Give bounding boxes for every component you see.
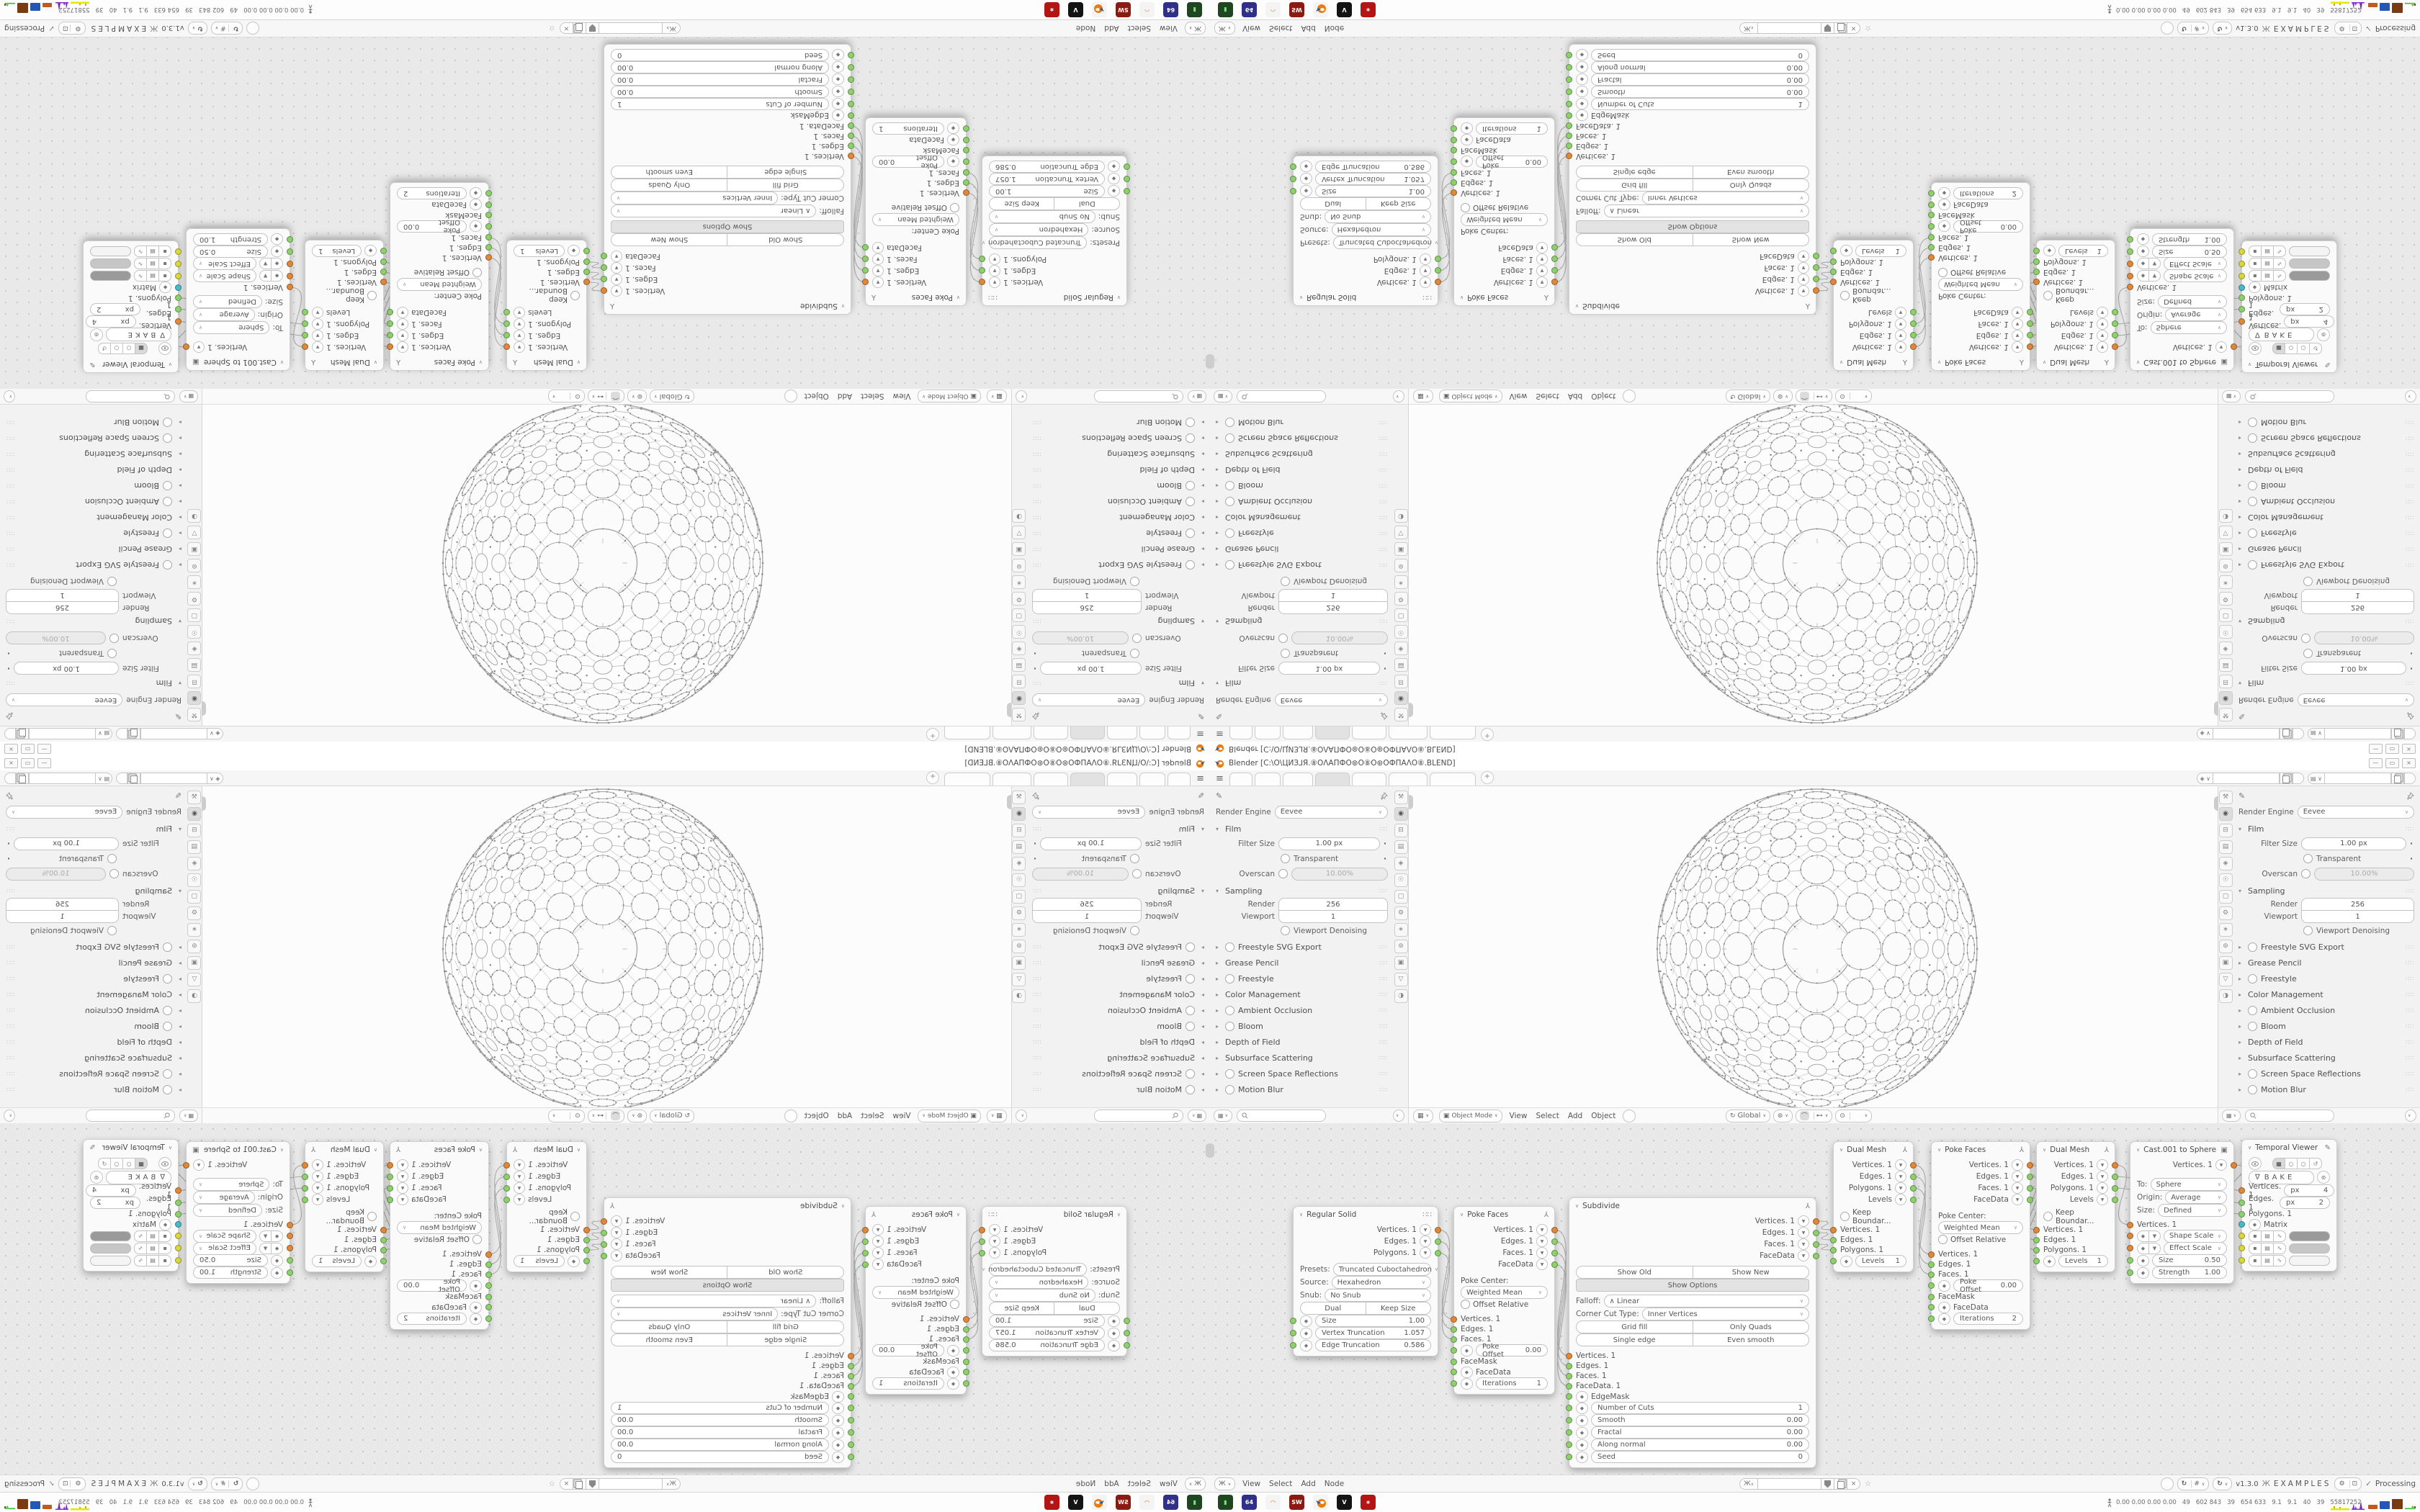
collapse-node-icon[interactable]: ∨ — [2136, 359, 2140, 365]
transparent-checkbox[interactable] — [1130, 854, 1139, 863]
socket[interactable] — [1566, 153, 1572, 160]
scene-selector-name-field[interactable] — [140, 773, 207, 784]
socket-menu-button[interactable]: ▼ — [514, 330, 525, 341]
scene-tab-icon[interactable]: ◈ — [1394, 857, 1408, 870]
transparent-checkbox[interactable] — [107, 854, 117, 863]
param-select[interactable]: Hexahedron∨ — [989, 223, 1088, 236]
socket[interactable] — [963, 1359, 969, 1365]
node-regular-solid[interactable]: ∨Regular Solid∷∷Vertices. 1▼Edges. 1▼Pol… — [1293, 1206, 1438, 1356]
collapsed-section[interactable]: ▸Grease Pencil∷∷ — [0, 956, 187, 969]
socket-menu-button[interactable]: ▼ — [2012, 318, 2023, 330]
socket[interactable] — [183, 344, 189, 351]
collapsed-section[interactable]: ▸Grease Pencil∷∷ — [1026, 543, 1210, 556]
node-editor-type-button[interactable]: Ж∨ — [1214, 22, 1235, 35]
section-toggle[interactable] — [163, 482, 172, 491]
node-poke-faces[interactable]: ∨Poke Faces⅄Vertices. 1▼Edges. 1▼Faces. … — [865, 1206, 967, 1395]
render-engine-select[interactable]: Eevee∨ — [2298, 806, 2414, 819]
search-input[interactable] — [1237, 390, 1326, 402]
collapse-menu-button[interactable]: ∨ — [1016, 390, 1027, 402]
section-toggle[interactable] — [1225, 1022, 1234, 1031]
option-button[interactable]: Keep Size — [989, 1302, 1055, 1315]
section-toggle[interactable] — [1186, 1022, 1195, 1031]
socket[interactable] — [1566, 1454, 1572, 1460]
socket-options-button[interactable]: ◆ — [364, 1256, 377, 1267]
output-tab-icon[interactable]: ⊟ — [2219, 824, 2233, 837]
socket-options-button[interactable]: ◆ — [1108, 1315, 1120, 1327]
value-field[interactable]: Poke Offset0.00 — [1953, 1279, 2023, 1292]
socket[interactable] — [2112, 1162, 2118, 1169]
socket[interactable] — [1451, 1369, 1457, 1375]
value-field[interactable]: Levels1 — [2058, 245, 2108, 257]
socket-menu-button[interactable]: ▼ — [1536, 242, 1548, 253]
value-field[interactable]: Strength1.00 — [2152, 233, 2227, 246]
display-mode-button[interactable]: ○ — [122, 1158, 135, 1169]
node-menu-node[interactable]: Node — [1323, 1480, 1345, 1488]
socket-menu-button[interactable]: ▼ — [1536, 276, 1548, 288]
value-field[interactable]: Iterations1 — [1476, 122, 1548, 135]
socket[interactable] — [2238, 1245, 2245, 1251]
node-menu-node[interactable]: Node — [1075, 24, 1097, 32]
node-poke-faces[interactable]: ∨Poke Faces⅄Vertices. 1▼Edges. 1▼Faces. … — [1453, 1206, 1555, 1395]
value-field[interactable]: Edge Truncation0.586 — [1315, 161, 1431, 173]
overscan-field[interactable]: 10.00% — [1291, 632, 1388, 645]
socket-options-button[interactable]: ◆ — [271, 246, 283, 258]
socket[interactable] — [2238, 318, 2245, 325]
socket[interactable] — [601, 265, 607, 271]
tree-name-field[interactable] — [1758, 22, 1821, 34]
socket[interactable] — [2238, 1221, 2245, 1228]
viewport-denoising-checkbox[interactable] — [1130, 577, 1139, 586]
viewport-menu-view[interactable]: View — [1508, 392, 1529, 401]
socket-menu-button[interactable]: ▼ — [397, 1159, 408, 1171]
output-tab-icon[interactable]: ⊟ — [1394, 675, 1408, 688]
socket[interactable] — [503, 344, 510, 351]
object-tab-icon[interactable]: ▢ — [1013, 890, 1026, 904]
object-tab-icon[interactable]: ▢ — [1394, 608, 1408, 622]
collapsed-section[interactable]: ▸Screen Space Reflections∷∷ — [1210, 1067, 1394, 1080]
editor-type-button[interactable]: ▦∨ — [2222, 390, 2241, 402]
socket[interactable] — [1830, 269, 1837, 276]
socket[interactable] — [287, 1245, 293, 1251]
collapsed-section[interactable]: ▸Motion Blur∷∷ — [1026, 1083, 1210, 1096]
collapsed-section[interactable]: ▸Motion Blur∷∷ — [2233, 416, 2420, 429]
socket[interactable] — [485, 190, 492, 197]
socket[interactable] — [963, 125, 969, 132]
close-button[interactable]: × — [4, 744, 18, 754]
node-dual-mesh[interactable]: ∨Dual Mesh⅄Vertices. 1▼Edges. 1▼Polygons… — [506, 240, 587, 371]
tool-tab-icon[interactable]: ⚒ — [2219, 791, 2233, 804]
unlink-button[interactable] — [4, 728, 16, 739]
swatch-option-button[interactable]: ▤ — [146, 1230, 159, 1242]
socket[interactable] — [387, 1197, 393, 1203]
socket-menu-button[interactable]: ▼ — [259, 258, 272, 270]
unlink-tree-button[interactable]: × — [1847, 1478, 1860, 1490]
render-engine-select[interactable]: Eevee∨ — [1275, 694, 1388, 707]
collapsed-section[interactable]: ▸Ambient Occlusion∷∷ — [0, 495, 187, 508]
section-toggle[interactable] — [163, 1069, 172, 1079]
physics-tab-icon[interactable]: ⊚ — [188, 940, 202, 953]
socket-menu-button[interactable]: ▼ — [1798, 1227, 1809, 1238]
toolbar-handle[interactable] — [1409, 703, 1413, 717]
collapsed-section[interactable]: ▸Bloom∷∷ — [1026, 480, 1210, 492]
value-field[interactable]: Strength1.00 — [2152, 1266, 2227, 1279]
section-toggle[interactable] — [1225, 1006, 1234, 1015]
particles-tab-icon[interactable]: ∗ — [188, 923, 202, 937]
socket[interactable] — [848, 112, 854, 119]
socket-menu-button[interactable]: ▼ — [872, 1236, 884, 1247]
socket[interactable] — [387, 1185, 393, 1192]
display-mode-button[interactable]: ▦ — [2272, 343, 2285, 354]
socket[interactable] — [175, 284, 181, 291]
proportional-edit-widget[interactable]: ⊙ ∨ — [548, 1110, 585, 1122]
option-button[interactable]: Show Options — [611, 220, 844, 233]
socket-menu-button[interactable]: ▼ — [397, 1171, 408, 1182]
socket[interactable] — [2027, 344, 2033, 351]
section-toggle[interactable] — [1186, 1006, 1195, 1015]
swatch-option-button[interactable]: ▪ — [2249, 271, 2262, 282]
collapsed-section[interactable]: ▸Motion Blur∷∷ — [1210, 1083, 1394, 1096]
option-button[interactable]: Show New — [1693, 233, 1810, 246]
socket[interactable] — [380, 1237, 387, 1243]
collapse-node-icon[interactable]: ∨ — [1937, 1147, 1941, 1153]
socket[interactable] — [963, 1369, 969, 1375]
update-all-widget[interactable]: ↻#∨ — [211, 1477, 243, 1490]
viewlayer-selector-name-field[interactable] — [2325, 773, 2391, 784]
option-button[interactable]: Even smooth — [611, 166, 728, 179]
socket-options-button[interactable]: ◆ — [1938, 1313, 1950, 1325]
socket-options-button[interactable]: ◆ — [1300, 174, 1312, 185]
value-field[interactable]: Levels1 — [514, 245, 565, 257]
tree-browse-button[interactable]: Ж∨ — [1739, 1478, 1758, 1490]
unlink-button[interactable] — [2404, 728, 2416, 739]
toggle-checkbox[interactable] — [472, 268, 482, 277]
socket[interactable] — [302, 1162, 308, 1169]
socket-options-button[interactable]: ◆ — [832, 86, 844, 98]
collapse-node-icon[interactable]: ∨ — [1460, 1212, 1464, 1218]
socket[interactable] — [485, 1294, 492, 1300]
socket[interactable] — [1435, 1227, 1441, 1233]
value-field[interactable]: Seed0 — [611, 1451, 829, 1463]
workspace-tab[interactable] — [1283, 726, 1313, 739]
socket-menu-button[interactable]: ▼ — [872, 1259, 884, 1270]
workspace-tab[interactable] — [1107, 726, 1137, 739]
console-app-icon[interactable]: ▮ — [1187, 2, 1202, 17]
socket[interactable] — [1551, 1227, 1558, 1233]
update-current-widget[interactable]: ↻∨ — [2213, 1477, 2232, 1490]
world-tab-icon[interactable]: ☉ — [1394, 625, 1408, 639]
socket-options-button[interactable]: ◆ — [832, 50, 844, 61]
console-app-icon[interactable]: ▮ — [1187, 1495, 1202, 1510]
material-tab-icon[interactable]: ◑ — [1394, 989, 1408, 1003]
overscan-field[interactable]: 10.00% — [6, 868, 106, 881]
collapsed-section[interactable]: ▸Grease Pencil∷∷ — [0, 543, 187, 556]
socket[interactable] — [1928, 212, 1935, 219]
modifiers-tab-icon[interactable]: ⚙ — [188, 906, 202, 920]
node-toolbar-handle[interactable] — [1210, 354, 1214, 369]
socket-menu-button[interactable]: ▼ — [2097, 341, 2108, 353]
value-field[interactable]: Levels1 — [312, 245, 362, 257]
value-field[interactable]: Strength1.00 — [193, 233, 268, 246]
node-subdivide[interactable]: ∨Subdivide⅄Vertices. 1▼Edges. 1▼Faces. 1… — [1569, 44, 1816, 315]
firefox-app-icon[interactable]: ◠ — [1139, 2, 1155, 17]
workspace-tab[interactable] — [1034, 773, 1068, 786]
socket[interactable] — [503, 333, 510, 339]
constraints-tab-icon[interactable]: ▣ — [1013, 542, 1026, 556]
collapsed-section[interactable]: ▸Freestyle SVG Export∷∷ — [2233, 940, 2420, 953]
collapse-node-icon[interactable]: ∨ — [577, 359, 581, 365]
node-editor-type-button[interactable]: Ж∨ — [1214, 1477, 1235, 1490]
socket-options-button[interactable]: ◆ — [1108, 1340, 1120, 1351]
render-tab-icon[interactable]: ◉ — [1394, 807, 1408, 821]
close-button[interactable]: × — [2402, 758, 2416, 768]
output-tab-icon[interactable]: ⊟ — [1013, 675, 1026, 688]
socket[interactable] — [1830, 1237, 1837, 1243]
sidebar-handle[interactable] — [202, 701, 206, 716]
socket[interactable] — [1451, 1359, 1457, 1365]
socket[interactable] — [2238, 284, 2245, 291]
collapse-node-icon[interactable]: ∨ — [1117, 294, 1121, 300]
transparent-checkbox[interactable] — [1281, 649, 1290, 658]
copy-button[interactable] — [2391, 773, 2404, 784]
collapse-menu-button[interactable]: ∨ — [1393, 1110, 1404, 1122]
socket[interactable] — [1566, 1393, 1572, 1400]
tree-settings-widget[interactable]: ⚙⊡ — [2334, 22, 2362, 35]
modifiers-tab-icon[interactable]: ⚙ — [188, 592, 202, 606]
socket-menu-button[interactable]: ▼ — [514, 1171, 525, 1182]
viewport-denoising-checkbox[interactable] — [2303, 577, 2313, 586]
socket[interactable] — [175, 1257, 181, 1264]
display-mode-button[interactable]: ○ — [110, 1158, 123, 1169]
socket[interactable] — [1813, 253, 1819, 260]
workspace-tab[interactable] — [1389, 773, 1428, 786]
socket[interactable] — [2238, 295, 2245, 302]
collapse-node-icon[interactable]: ∨ — [169, 361, 172, 367]
viewport-3d[interactable]: ▦∨ ▣ Object Mode∨ View Select Add Object… — [1408, 389, 2218, 726]
socket[interactable] — [583, 1237, 590, 1243]
socket[interactable] — [963, 1336, 969, 1343]
workspace-tab[interactable] — [1255, 726, 1281, 739]
socket[interactable] — [2127, 1245, 2133, 1251]
socket-menu-button[interactable]: ▼ — [2097, 330, 2108, 341]
toggle-checkbox[interactable] — [472, 1235, 482, 1244]
socket-menu-button[interactable]: ▼ — [312, 307, 323, 318]
render-engine-select[interactable]: Eevee∨ — [1275, 806, 1388, 819]
display-mode-button[interactable]: ○ — [2297, 343, 2310, 354]
param-select[interactable]: Inner Vertices∨ — [1642, 192, 1809, 204]
socket-options-button[interactable]: ◆ — [1300, 186, 1312, 197]
view-layer-tab-icon[interactable]: ▤ — [1394, 840, 1408, 854]
socket-menu-button[interactable]: ▼ — [1420, 253, 1431, 265]
render-tab-icon[interactable]: ◉ — [1013, 691, 1026, 705]
socket[interactable] — [1910, 344, 1917, 351]
collapsed-section[interactable]: ▸Bloom∷∷ — [1210, 1020, 1394, 1032]
eye-icon[interactable] — [2249, 342, 2262, 355]
copy-tree-button[interactable] — [1834, 1478, 1847, 1490]
output-tab-icon[interactable]: ⊟ — [2219, 675, 2233, 688]
socket[interactable] — [979, 1238, 985, 1245]
mode-select[interactable]: Effect Scale∨ — [193, 258, 256, 271]
socket-menu-button[interactable]: ▼ — [193, 341, 205, 353]
overscan-field[interactable]: 10.00% — [1032, 868, 1129, 881]
data-tab-icon[interactable]: ▽ — [2219, 526, 2233, 539]
overscan-checkbox[interactable] — [2301, 634, 2311, 643]
socket[interactable] — [175, 273, 181, 279]
overscan-field[interactable]: 10.00% — [1291, 868, 1388, 881]
blender-app-icon[interactable] — [1313, 1495, 1328, 1510]
collapsed-section[interactable]: ▸Motion Blur∷∷ — [1026, 416, 1210, 429]
socket[interactable] — [1910, 1197, 1917, 1203]
workspace-tab[interactable] — [1352, 773, 1386, 786]
collapsed-section[interactable]: ▸Screen Space Reflections∷∷ — [1026, 432, 1210, 445]
viewport-menu-object[interactable]: Object — [1590, 392, 1617, 401]
section-toggle[interactable] — [1186, 974, 1195, 984]
socket[interactable] — [979, 268, 985, 274]
socket[interactable] — [387, 321, 393, 328]
socket-menu-button[interactable]: ▼ — [397, 1182, 408, 1194]
socket[interactable] — [848, 1353, 854, 1359]
collapsed-section[interactable]: ▸Grease Pencil∷∷ — [2233, 956, 2420, 969]
viewport-menu-select[interactable]: Select — [859, 1112, 885, 1120]
copy-button[interactable] — [127, 728, 140, 739]
socket-options-button[interactable]: ◆ — [2043, 1256, 2056, 1267]
socket[interactable] — [963, 1347, 969, 1354]
workspace-tab[interactable] — [1255, 773, 1281, 786]
socket-menu-button[interactable]: ▼ — [989, 1224, 1000, 1236]
param-select[interactable]: Sphere∨ — [2151, 321, 2227, 334]
search-input[interactable] — [2245, 390, 2334, 402]
material-tab-icon[interactable]: ◑ — [1013, 509, 1026, 523]
section-toggle[interactable] — [1186, 434, 1195, 444]
socket[interactable] — [503, 1185, 510, 1192]
socket-menu-button[interactable]: ▼ — [514, 341, 525, 353]
socket[interactable] — [1928, 1261, 1935, 1268]
collapsed-section[interactable]: ▸Screen Space Reflections∷∷ — [1026, 1067, 1210, 1080]
socket-menu-button[interactable]: ▼ — [312, 1159, 323, 1171]
socket[interactable] — [485, 202, 492, 208]
socket[interactable] — [1830, 279, 1837, 286]
socket[interactable] — [1451, 1347, 1457, 1354]
collapsed-section[interactable]: ▸Freestyle SVG Export∷∷ — [2233, 559, 2420, 572]
collapsed-section[interactable]: ▸Screen Space Reflections∷∷ — [2233, 432, 2420, 445]
socket[interactable] — [862, 245, 869, 251]
socket-options-button[interactable]: ◆ — [832, 74, 844, 86]
socket-options-button[interactable]: ◆ — [947, 123, 959, 135]
close-button[interactable]: × — [2402, 744, 2416, 754]
swatch-option-button[interactable]: ▤ — [146, 271, 159, 282]
value-field[interactable]: Along normal0.00 — [611, 61, 829, 73]
socket[interactable] — [2033, 269, 2040, 276]
physics-tab-icon[interactable]: ⊚ — [2219, 559, 2233, 572]
option-button[interactable]: Grid fill — [1576, 1320, 1693, 1333]
socket-menu-button[interactable]: ▼ — [611, 1227, 622, 1238]
socket-menu-button[interactable]: ▼ — [1420, 1224, 1431, 1236]
socket-options-button[interactable]: ◆ — [2249, 1219, 2261, 1230]
scene-selector-browse-button[interactable]: ◈ ∨ — [2197, 773, 2213, 784]
viewport-menu-view[interactable]: View — [1508, 1112, 1529, 1120]
socket-menu-button[interactable]: ▼ — [1798, 1238, 1809, 1250]
socket[interactable] — [2231, 1162, 2237, 1169]
socket-menu-button[interactable]: ▼ — [2012, 341, 2023, 353]
socket[interactable] — [175, 1211, 181, 1218]
scene-tab-icon[interactable]: ◈ — [188, 857, 202, 870]
section-toggle[interactable] — [1225, 418, 1234, 428]
value-field[interactable]: Iterations1 — [1476, 1377, 1548, 1390]
option-button[interactable]: Only Quads — [611, 1320, 728, 1333]
pin-tree-icon[interactable]: ☆ — [1865, 24, 1871, 32]
value-field[interactable]: Iterations1 — [872, 122, 944, 135]
socket-options-button[interactable]: ◆ — [271, 258, 283, 270]
samples-render-field[interactable]: 256 — [1032, 898, 1142, 911]
socket-options-button[interactable]: ◆ — [271, 271, 283, 282]
collapse-node-icon[interactable]: ∨ — [479, 359, 483, 365]
overscan-field[interactable]: 10.00% — [2314, 868, 2414, 881]
socket[interactable] — [848, 1429, 854, 1436]
collapse-node-icon[interactable]: ∨ — [280, 359, 284, 365]
socket-options-button[interactable]: ◆ — [1576, 74, 1588, 86]
display-mode-button[interactable]: ○ — [2285, 343, 2298, 354]
node-menu-view[interactable]: View — [1158, 24, 1179, 32]
editor-type-button[interactable]: ▦∨ — [1214, 1110, 1232, 1122]
viewport-menu-select[interactable]: Select — [859, 392, 885, 401]
scene-tab-icon[interactable]: ◈ — [1013, 642, 1026, 655]
socket[interactable] — [848, 123, 854, 130]
socket[interactable] — [2112, 344, 2118, 351]
copy-tree-button[interactable] — [573, 22, 586, 34]
update-current-widget[interactable]: ↻∨ — [2213, 22, 2232, 35]
collapsed-section[interactable]: ▸Grease Pencil∷∷ — [1210, 543, 1394, 556]
scene-selector-browse-button[interactable]: ◈ ∨ — [207, 728, 223, 739]
socket-menu-button[interactable]: ▼ — [611, 1238, 622, 1250]
transform-orientation-select[interactable]: ↻ Global∨ — [1726, 1110, 1770, 1122]
socket-options-button[interactable]: ◆ — [1576, 1439, 1588, 1451]
socket[interactable] — [848, 1454, 854, 1460]
socket-options-button[interactable]: ◆ — [2137, 1243, 2149, 1254]
collapsed-section[interactable]: ▸Freestyle SVG Export∷∷ — [1210, 940, 1394, 953]
option-button[interactable]: Keep Size — [989, 197, 1055, 210]
suite-app-icon[interactable]: ∗ — [1361, 1495, 1376, 1510]
scene-selector-name-field[interactable] — [2213, 773, 2280, 784]
value-field[interactable]: Size0.50 — [2152, 246, 2227, 258]
socket[interactable] — [2112, 1185, 2118, 1192]
section-toggle[interactable] — [2248, 974, 2257, 984]
overscan-checkbox[interactable] — [1278, 869, 1288, 878]
collapsed-section[interactable]: ▸Motion Blur∷∷ — [0, 1083, 187, 1096]
socket[interactable] — [1910, 310, 1917, 316]
param-select[interactable]: Weighted Mean∨ — [872, 213, 959, 226]
value-field[interactable]: Edge Truncation0.586 — [989, 1339, 1105, 1351]
socket[interactable] — [1566, 76, 1572, 83]
swatch-option-button[interactable]: ▤ — [2261, 271, 2274, 282]
material-tab-icon[interactable]: ◑ — [2219, 509, 2233, 523]
maximize-button[interactable]: ▭ — [2385, 758, 2399, 768]
update-toggle-button[interactable] — [246, 22, 259, 35]
swatch-option-button[interactable]: ∿ — [134, 271, 147, 282]
swatch-option-button[interactable]: ▪ — [2249, 246, 2262, 258]
socket[interactable] — [1566, 1417, 1572, 1423]
collapse-menu-button[interactable]: ∨ — [4, 390, 15, 402]
socket[interactable] — [1435, 1238, 1441, 1245]
socket[interactable] — [1290, 1342, 1296, 1349]
proportional-edit-widget[interactable]: ⊙ ∨ — [1835, 1110, 1872, 1122]
pivot-point-select[interactable]: ⊚∨ — [627, 1110, 647, 1122]
collapsed-section[interactable]: ▸Freestyle∷∷ — [2233, 527, 2420, 540]
world-tab-icon[interactable]: ☉ — [188, 873, 202, 887]
swatch-option-button[interactable]: ▪ — [158, 246, 171, 258]
transparent-checkbox[interactable] — [1281, 854, 1290, 863]
socket[interactable] — [175, 248, 181, 255]
section-toggle[interactable] — [163, 1022, 172, 1031]
viewport-menu-object[interactable]: Object — [803, 392, 830, 401]
